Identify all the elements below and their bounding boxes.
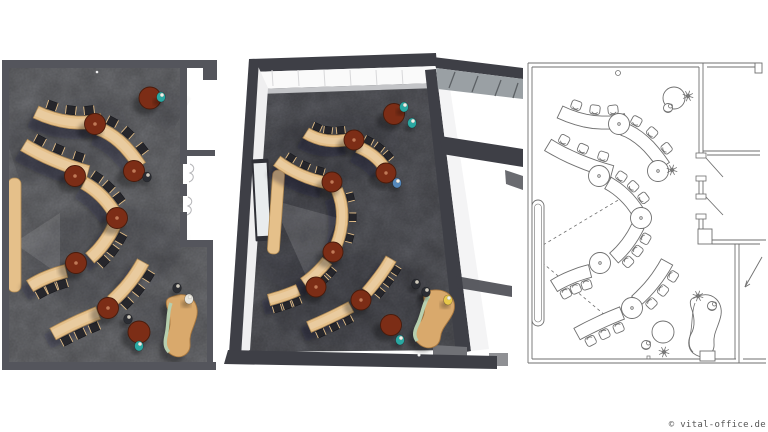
- chair-seat: [336, 126, 345, 134]
- wall: [203, 60, 217, 80]
- person-head: [425, 288, 429, 292]
- chair: [608, 105, 619, 115]
- chair: [570, 99, 582, 111]
- desk-base: [700, 351, 715, 361]
- plant-symbol: [659, 347, 670, 358]
- round-table: [622, 298, 643, 319]
- wall: [180, 212, 187, 242]
- door-jamb: [696, 194, 706, 199]
- wall-post: [755, 63, 762, 73]
- chair: [336, 126, 345, 134]
- round-table-center: [106, 306, 110, 310]
- sideboard: [8, 178, 21, 292]
- ceiling-dot: [616, 71, 621, 76]
- copyright-text: © vital-office.de: [669, 420, 766, 430]
- panel-perspective-render: [224, 53, 523, 369]
- door-jamb: [696, 153, 706, 158]
- wall: [207, 247, 213, 364]
- person-head: [447, 296, 451, 300]
- round-table: [589, 166, 610, 187]
- person-head: [188, 295, 192, 299]
- sideboard: [532, 200, 544, 326]
- round-table-center: [74, 261, 78, 265]
- door-swing: [745, 257, 762, 287]
- round-table-center: [132, 169, 136, 173]
- panel-top-view-render: [0, 60, 218, 370]
- wall-post: [698, 229, 712, 244]
- person-head: [127, 315, 131, 319]
- ceiling-dot: [96, 71, 99, 74]
- round-table-center: [330, 180, 333, 183]
- door-swing: [706, 158, 723, 177]
- furniture-layer: [545, 87, 722, 357]
- door-jamb: [696, 214, 706, 219]
- person-head: [146, 173, 150, 177]
- round-table: [128, 321, 150, 343]
- person-head: [415, 280, 419, 284]
- chair: [589, 105, 600, 115]
- round-table-center: [384, 171, 387, 174]
- chair: [65, 105, 76, 115]
- wall: [180, 184, 187, 196]
- person-head: [396, 179, 400, 183]
- door-swing-mark: [187, 197, 192, 215]
- round-table: [652, 321, 674, 343]
- round-table-center: [314, 285, 317, 288]
- floorplan-composite: © vital-office.de: [0, 0, 768, 432]
- round-table-center: [93, 122, 97, 126]
- round-table-center: [73, 174, 77, 178]
- round-table: [381, 315, 402, 336]
- door-swing: [706, 197, 723, 215]
- chair-seat: [323, 126, 332, 134]
- chair: [349, 213, 356, 222]
- sightline: [533, 193, 630, 251]
- wall: [180, 240, 213, 247]
- chair-seat: [349, 213, 356, 222]
- wall: [2, 60, 9, 370]
- round-table: [609, 114, 630, 135]
- wall: [180, 156, 187, 164]
- round-table-center: [359, 298, 362, 301]
- scene-svg: © vital-office.de: [0, 0, 768, 432]
- wall: [180, 66, 187, 150]
- round-table: [648, 161, 669, 182]
- panel-line-drawing: [528, 63, 766, 363]
- round-table-center: [352, 138, 355, 141]
- person-head: [403, 103, 407, 107]
- door-swing-mark: [189, 164, 194, 182]
- person-head: [138, 342, 142, 346]
- person-head: [411, 119, 415, 123]
- chair: [581, 279, 593, 291]
- wall: [180, 150, 215, 156]
- round-table: [631, 208, 652, 229]
- chair: [323, 126, 332, 134]
- door-jamb: [696, 176, 706, 181]
- floor-dot: [418, 354, 421, 357]
- round-table: [590, 253, 611, 274]
- chair: [597, 150, 609, 162]
- wall: [2, 362, 216, 370]
- chair-outline: [589, 105, 600, 115]
- corridor-wall-band: [505, 170, 523, 190]
- person-head: [176, 284, 180, 288]
- round-table-center: [115, 216, 119, 220]
- person-head: [160, 93, 164, 97]
- chair-outline: [608, 105, 619, 115]
- person-head: [399, 336, 403, 340]
- chair-seat: [65, 105, 76, 115]
- round-table-center: [331, 250, 334, 253]
